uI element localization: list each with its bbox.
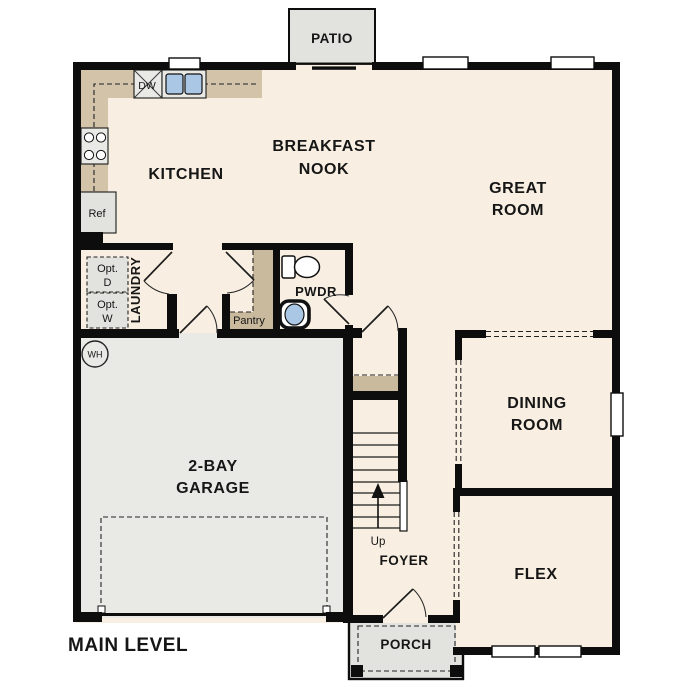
label-kitchen: KITCHEN: [148, 166, 223, 183]
label-breakfast-nook-2: NOOK: [299, 161, 349, 178]
label-opt-washer-1: Opt.: [97, 299, 118, 311]
label-garage-1: 2-BAY: [188, 458, 238, 475]
label-powder: PWDR: [295, 284, 337, 299]
sink-basin-left: [166, 74, 183, 94]
stair-rail: [400, 481, 407, 531]
flex-window-left: [492, 646, 535, 657]
label-garage-2: GARAGE: [176, 480, 250, 497]
room-garage: [85, 340, 340, 610]
label-dining-2: ROOM: [511, 417, 563, 434]
label-pantry: Pantry: [233, 315, 265, 327]
label-refrigerator: Ref: [88, 208, 106, 220]
label-great-room-1: GREAT: [489, 180, 547, 197]
label-laundry: LAUNDRY: [128, 257, 143, 324]
label-porch: PORCH: [380, 637, 431, 652]
label-dishwasher: DW: [138, 80, 156, 92]
label-patio: PATIO: [311, 31, 353, 46]
powder-sink-basin: [285, 304, 304, 325]
kitchen-window: [169, 58, 200, 69]
room-breakfast-nook: [250, 100, 400, 220]
porch-post-right: [450, 665, 462, 677]
patio-slider-panel: [312, 66, 356, 69]
label-great-room-2: ROOM: [492, 202, 544, 219]
great-room-window-right: [551, 57, 594, 69]
label-up: Up: [371, 536, 386, 548]
floor-plan-canvas: PATIO BREAKFAST NOOK KITCHEN GREAT ROOM …: [0, 0, 687, 687]
label-opt-dryer-2: D: [104, 277, 112, 289]
label-opt-dryer-1: Opt.: [97, 263, 118, 275]
sink-basin-right: [185, 74, 202, 94]
floor-plan: PATIO BREAKFAST NOOK KITCHEN GREAT ROOM …: [0, 0, 687, 687]
room-dining: [463, 340, 611, 486]
great-room-window-left: [423, 57, 468, 69]
porch-post-left: [351, 665, 363, 677]
label-breakfast-nook-1: BREAKFAST: [272, 138, 375, 155]
plan-title: MAIN LEVEL: [68, 635, 188, 656]
label-dining-1: DINING: [507, 395, 567, 412]
closet-shelf: [353, 376, 398, 391]
dining-window: [611, 393, 623, 436]
toilet-tank: [282, 256, 295, 278]
label-opt-washer-2: W: [102, 313, 113, 325]
toilet-bowl: [295, 257, 320, 278]
label-water-heater: WH: [88, 350, 103, 360]
label-flex: FLEX: [514, 566, 557, 583]
label-foyer: FOYER: [379, 553, 428, 568]
flex-window-right: [539, 646, 581, 657]
room-great-room: [400, 75, 610, 325]
